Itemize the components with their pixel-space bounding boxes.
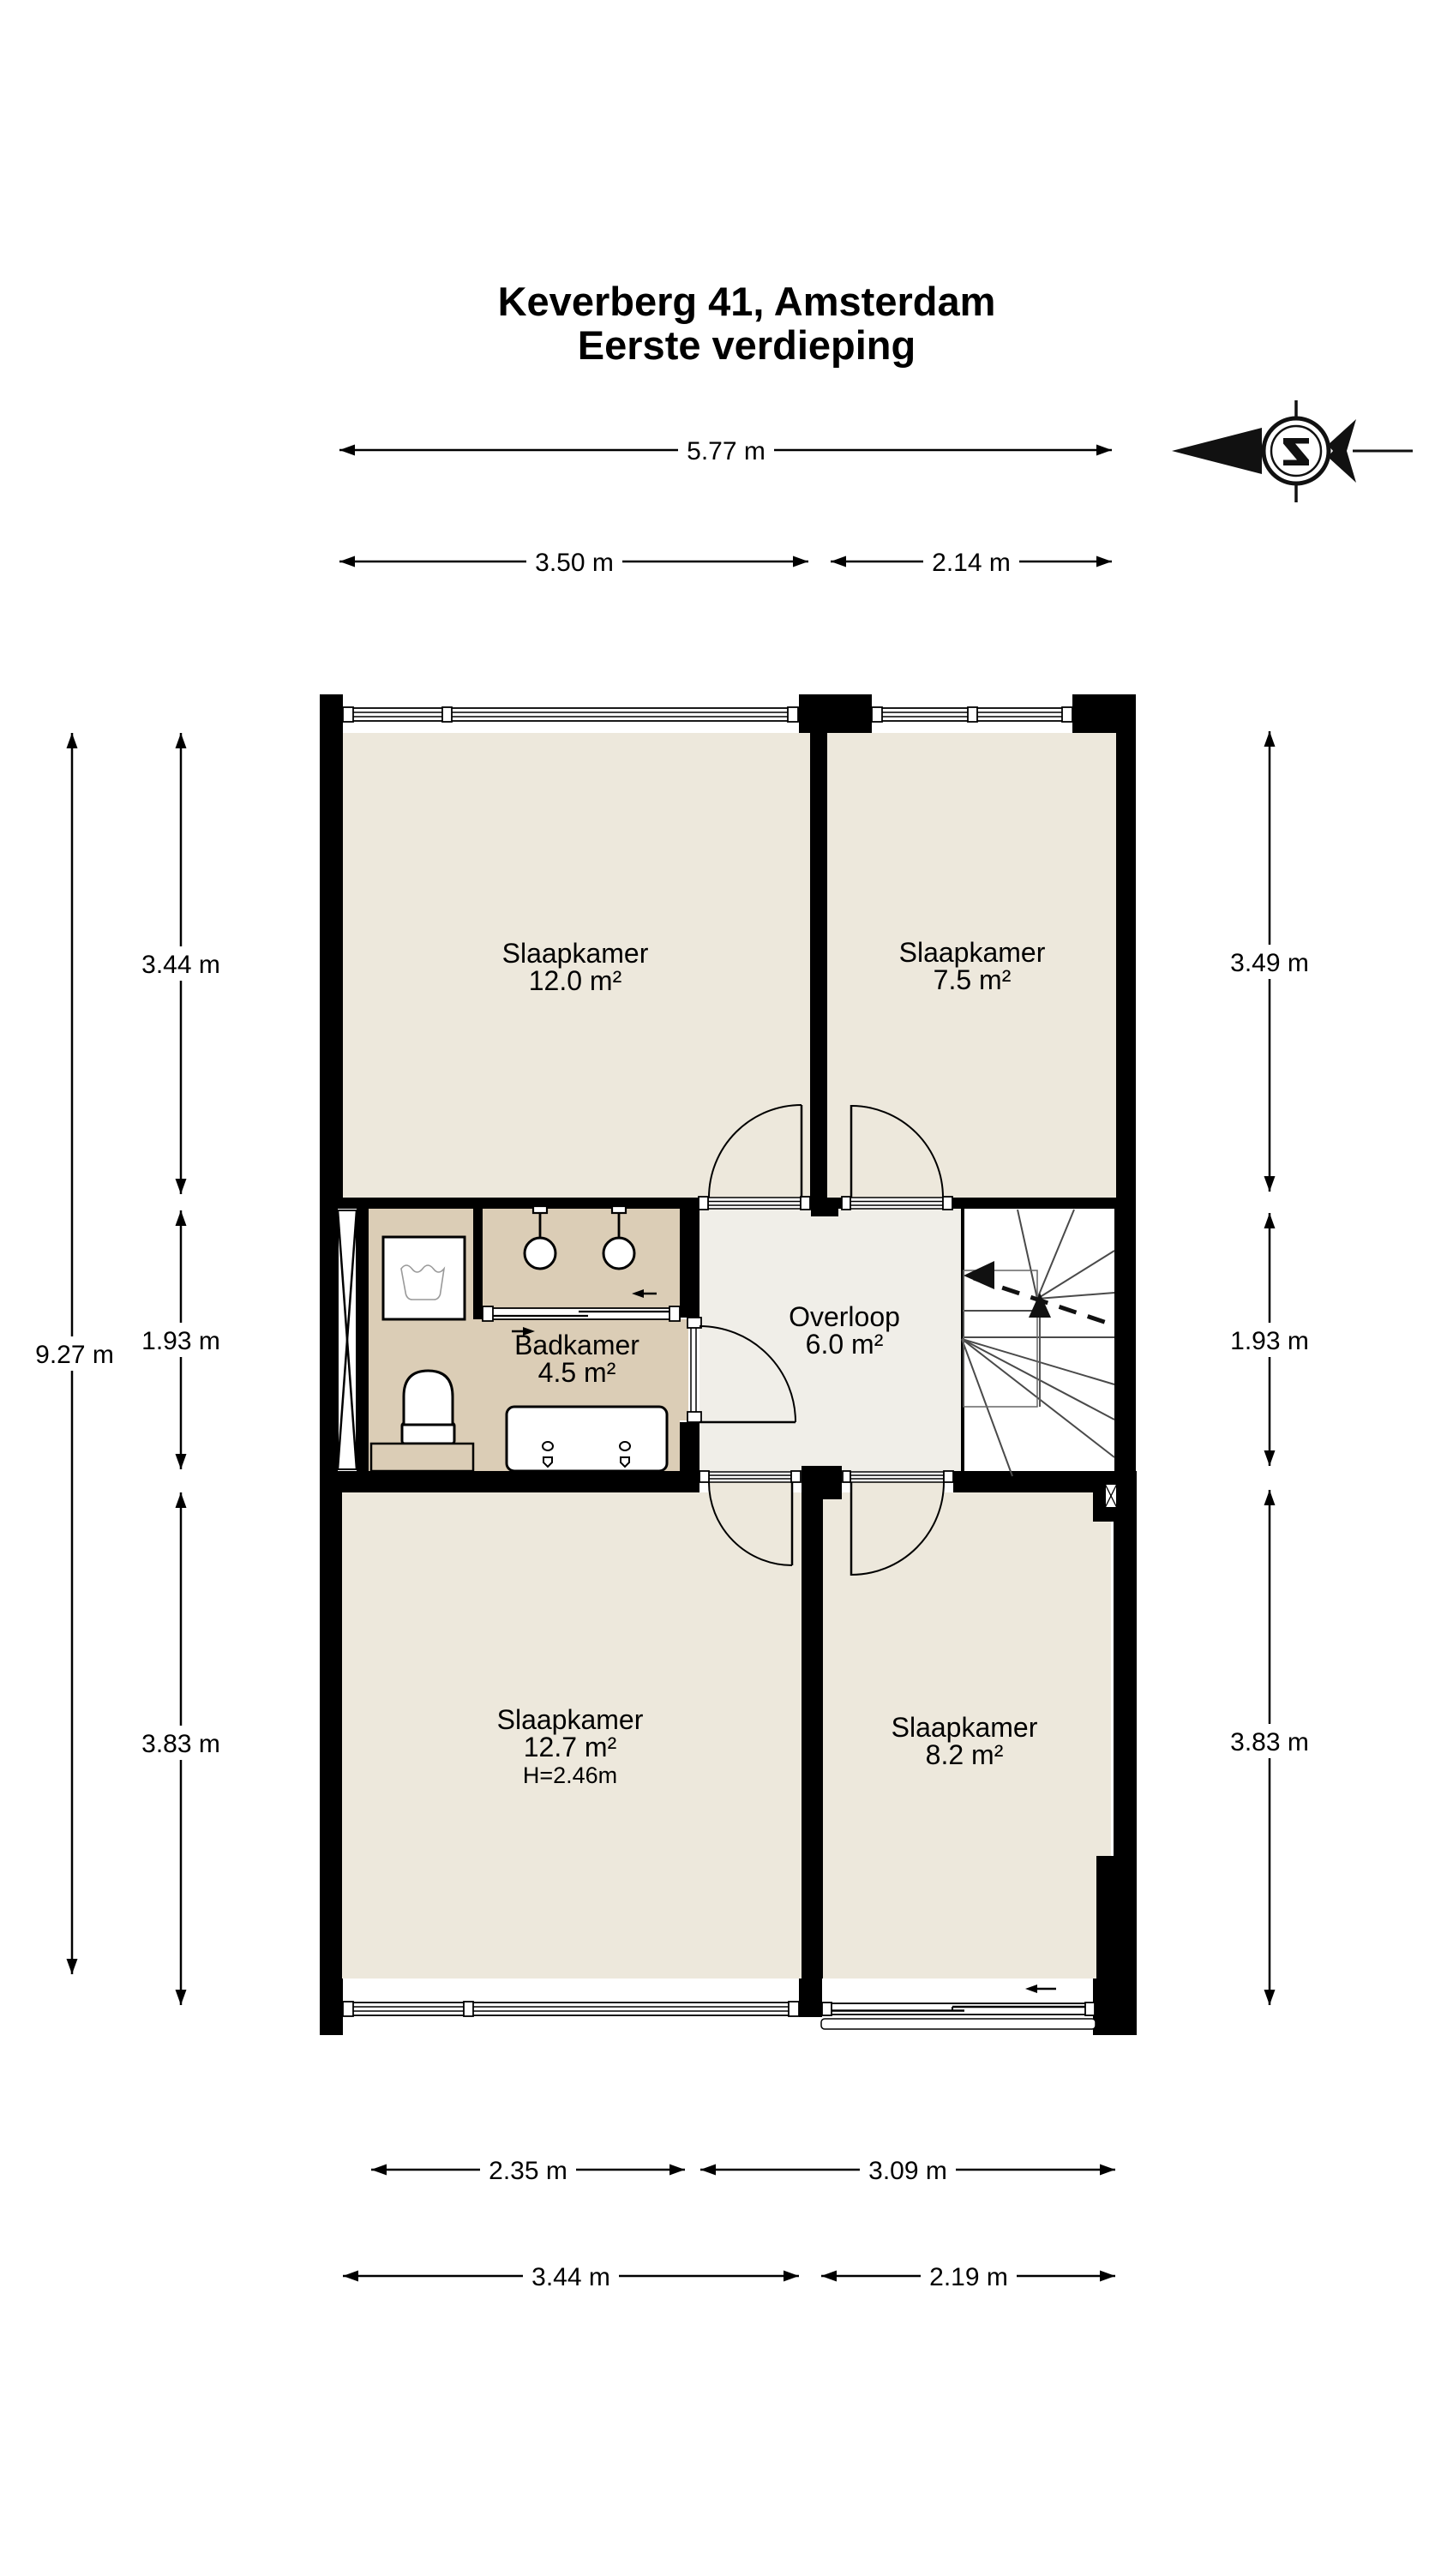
svg-text:2.19 m: 2.19 m (929, 2263, 1008, 2291)
svg-text:2.35 m: 2.35 m (489, 2157, 567, 2185)
svg-text:7.5 m²: 7.5 m² (934, 964, 1012, 995)
svg-text:12.0 m²: 12.0 m² (529, 965, 622, 996)
svg-text:5.77 m: 5.77 m (687, 437, 766, 465)
svg-text:Slaapkamer: Slaapkamer (899, 937, 1046, 968)
svg-text:Keverberg 41, Amsterdam: Keverberg 41, Amsterdam (498, 279, 996, 324)
svg-text:Slaapkamer: Slaapkamer (502, 938, 649, 969)
svg-text:8.2 m²: 8.2 m² (926, 1739, 1004, 1770)
svg-text:1.93 m: 1.93 m (1230, 1327, 1309, 1355)
svg-text:2.14 m: 2.14 m (932, 549, 1011, 577)
svg-text:3.83 m: 3.83 m (141, 1730, 220, 1758)
svg-text:H=2.46m: H=2.46m (523, 1762, 617, 1788)
svg-text:Eerste verdieping: Eerste verdieping (578, 322, 916, 368)
svg-text:Badkamer: Badkamer (514, 1330, 639, 1360)
svg-text:3.49 m: 3.49 m (1230, 949, 1309, 977)
svg-text:1.93 m: 1.93 m (141, 1327, 220, 1355)
svg-text:3.83 m: 3.83 m (1230, 1728, 1309, 1756)
svg-text:6.0 m²: 6.0 m² (806, 1329, 884, 1360)
svg-text:9.27 m: 9.27 m (35, 1341, 114, 1369)
svg-text:3.44 m: 3.44 m (531, 2263, 610, 2291)
svg-text:Slaapkamer: Slaapkamer (497, 1704, 644, 1735)
svg-text:12.7 m²: 12.7 m² (524, 1732, 617, 1762)
svg-text:3.09 m: 3.09 m (868, 2157, 947, 2185)
svg-text:3.44 m: 3.44 m (141, 951, 220, 979)
svg-text:Slaapkamer: Slaapkamer (892, 1712, 1038, 1743)
svg-text:4.5 m²: 4.5 m² (538, 1357, 616, 1388)
svg-text:3.50 m: 3.50 m (535, 549, 614, 577)
svg-text:Overloop: Overloop (789, 1301, 900, 1332)
